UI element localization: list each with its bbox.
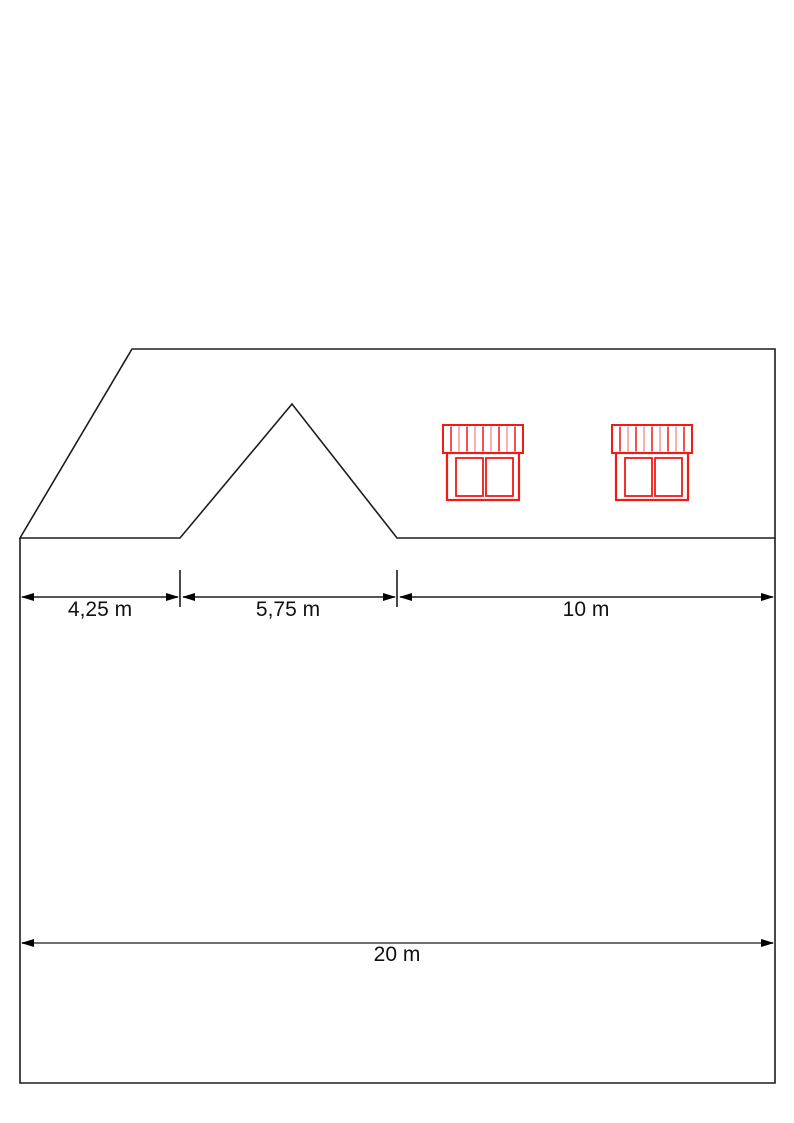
dimension-label-1: 4,25 m	[68, 598, 132, 621]
roof-elevation-svg: 4,25 m 5,75 m 10 m 20 m	[0, 0, 794, 1123]
technical-drawing-canvas: 4,25 m 5,75 m 10 m 20 m	[0, 0, 794, 1123]
window-pane-right	[486, 458, 513, 496]
window-pane-left	[625, 458, 652, 496]
window-pane-left	[456, 458, 483, 496]
dimension-label-2: 5,75 m	[256, 598, 320, 621]
arrowhead-left-icon	[399, 593, 412, 601]
building-rectangle	[20, 538, 775, 1083]
arrowhead-right-icon	[383, 593, 396, 601]
arrowhead-right-icon	[761, 593, 774, 601]
arrowhead-left-icon	[21, 593, 34, 601]
arrowhead-left-icon	[182, 593, 195, 601]
arrowhead-right-icon	[166, 593, 179, 601]
window-pane-right	[655, 458, 682, 496]
arrowhead-left-icon	[21, 939, 34, 947]
dimension-label-4: 20 m	[374, 943, 421, 966]
dormer-window-right	[612, 425, 692, 500]
arrowhead-right-icon	[761, 939, 774, 947]
dormer-window-left	[443, 425, 523, 500]
dimension-label-3: 10 m	[563, 598, 610, 621]
